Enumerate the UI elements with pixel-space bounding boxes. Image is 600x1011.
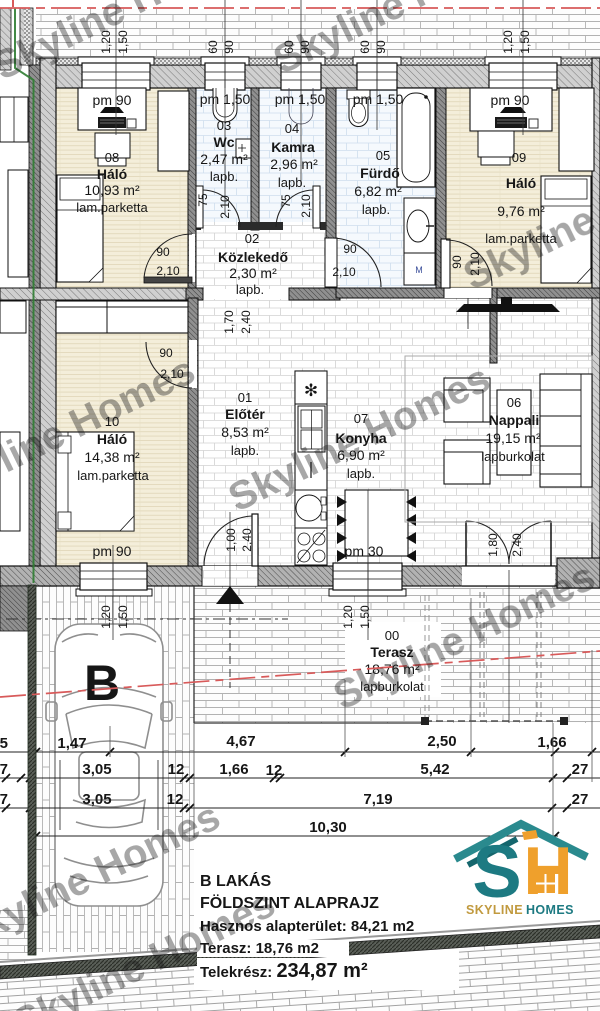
svg-text:8,53 m²: 8,53 m²: [221, 424, 269, 440]
svg-text:10,93 m²: 10,93 m²: [84, 182, 140, 198]
svg-text:lam.parketta: lam.parketta: [76, 200, 148, 215]
svg-text:pm 1,50: pm 1,50: [275, 91, 326, 107]
svg-text:1,70: 1,70: [222, 310, 236, 334]
svg-text:01: 01: [238, 390, 252, 405]
svg-text:Telekrész: 234,87 m²: Telekrész: 234,87 m²: [200, 960, 368, 982]
svg-text:7: 7: [0, 791, 8, 808]
svg-text:90: 90: [343, 242, 357, 256]
svg-text:✻: ✻: [304, 381, 318, 400]
svg-text:Háló: Háló: [506, 175, 536, 191]
svg-text:pm 1,50: pm 1,50: [200, 91, 251, 107]
svg-text:lapb.: lapb.: [362, 202, 390, 217]
svg-text:lapb.: lapb.: [347, 466, 375, 481]
svg-text:2,47 m²: 2,47 m²: [200, 151, 248, 167]
svg-text:12: 12: [168, 761, 185, 778]
svg-text:06: 06: [507, 395, 521, 410]
svg-text:2,40: 2,40: [510, 533, 524, 557]
svg-text:1,50: 1,50: [116, 605, 130, 629]
svg-text:1,66: 1,66: [537, 734, 566, 751]
svg-text:pm 30: pm 30: [345, 543, 384, 559]
svg-text:27: 27: [572, 791, 589, 808]
svg-text:2,40: 2,40: [240, 528, 254, 552]
svg-text:Előtér: Előtér: [225, 406, 265, 422]
svg-text:lapb.: lapb.: [231, 443, 259, 458]
svg-text:05: 05: [376, 148, 390, 163]
svg-text:lapburkolat: lapburkolat: [481, 449, 545, 464]
svg-text:02: 02: [245, 231, 259, 246]
svg-text:2,10: 2,10: [332, 265, 356, 279]
svg-text:HOMES: HOMES: [526, 903, 574, 917]
svg-text:1,20: 1,20: [341, 605, 355, 629]
svg-text:1,20: 1,20: [99, 605, 113, 629]
svg-text:03: 03: [217, 118, 231, 133]
svg-text:90: 90: [374, 40, 388, 54]
svg-text:75: 75: [279, 194, 293, 208]
svg-text:Közlekedő: Közlekedő: [218, 249, 288, 265]
svg-text:Nappali: Nappali: [489, 412, 540, 428]
svg-text:7: 7: [0, 761, 8, 778]
svg-text:1,20: 1,20: [501, 30, 515, 54]
svg-text:4,67: 4,67: [226, 733, 255, 750]
svg-text:10,30: 10,30: [309, 819, 347, 836]
svg-text:12: 12: [266, 762, 283, 779]
svg-text:5,42: 5,42: [420, 761, 449, 778]
svg-text:1,50: 1,50: [518, 30, 532, 54]
svg-text:Fürdő: Fürdő: [360, 165, 400, 181]
svg-text:1,80: 1,80: [486, 533, 500, 557]
svg-text:2,40: 2,40: [239, 310, 253, 334]
svg-text:75: 75: [196, 193, 210, 207]
svg-text:lapb.: lapb.: [236, 282, 264, 297]
svg-text:1,66: 1,66: [219, 761, 248, 778]
svg-text:00: 00: [385, 628, 399, 643]
svg-text:08: 08: [105, 150, 119, 165]
svg-text:2,10: 2,10: [299, 194, 313, 218]
svg-text:Wc: Wc: [214, 134, 235, 150]
svg-text:lapb.: lapb.: [278, 175, 306, 190]
svg-text:S: S: [472, 830, 521, 913]
svg-text:lam.parketta: lam.parketta: [77, 468, 149, 483]
svg-text:27: 27: [572, 761, 589, 778]
svg-text:M: M: [415, 265, 423, 275]
svg-text:pm 90: pm 90: [93, 92, 132, 108]
svg-text:04: 04: [285, 121, 299, 136]
svg-text:lapb.: lapb.: [210, 169, 238, 184]
svg-text:60: 60: [206, 40, 220, 54]
svg-text:Háló: Háló: [97, 166, 127, 182]
svg-text:H: H: [523, 833, 572, 909]
svg-text:14,38 m²: 14,38 m²: [84, 449, 140, 465]
svg-text:pm 1,50: pm 1,50: [353, 91, 404, 107]
svg-text:2,50: 2,50: [427, 733, 456, 750]
svg-text:SKYLINE: SKYLINE: [466, 903, 523, 917]
svg-text:6,82 m²: 6,82 m²: [354, 183, 402, 199]
svg-text:pm 90: pm 90: [491, 92, 530, 108]
svg-text:3,05: 3,05: [82, 761, 111, 778]
svg-text:09: 09: [512, 150, 526, 165]
svg-text:pm 90: pm 90: [93, 543, 132, 559]
svg-text:Kamra: Kamra: [271, 139, 315, 155]
svg-text:2,30 m²: 2,30 m²: [229, 265, 277, 281]
svg-text:90: 90: [156, 245, 170, 259]
svg-text:1,47: 1,47: [57, 735, 86, 752]
svg-text:90: 90: [222, 40, 236, 54]
svg-text:2,10: 2,10: [156, 264, 180, 278]
svg-text:3,05: 3,05: [82, 791, 111, 808]
svg-text:7,19: 7,19: [363, 791, 392, 808]
svg-text:9,76 m²: 9,76 m²: [497, 203, 545, 219]
svg-text:1,50: 1,50: [358, 605, 372, 629]
svg-text:B: B: [84, 655, 120, 711]
svg-text:5: 5: [0, 735, 8, 752]
svg-text:12: 12: [167, 791, 184, 808]
svg-text:19,15 m²: 19,15 m²: [485, 430, 541, 446]
svg-text:1,00: 1,00: [224, 528, 238, 552]
svg-text:2,96 m²: 2,96 m²: [270, 156, 318, 172]
